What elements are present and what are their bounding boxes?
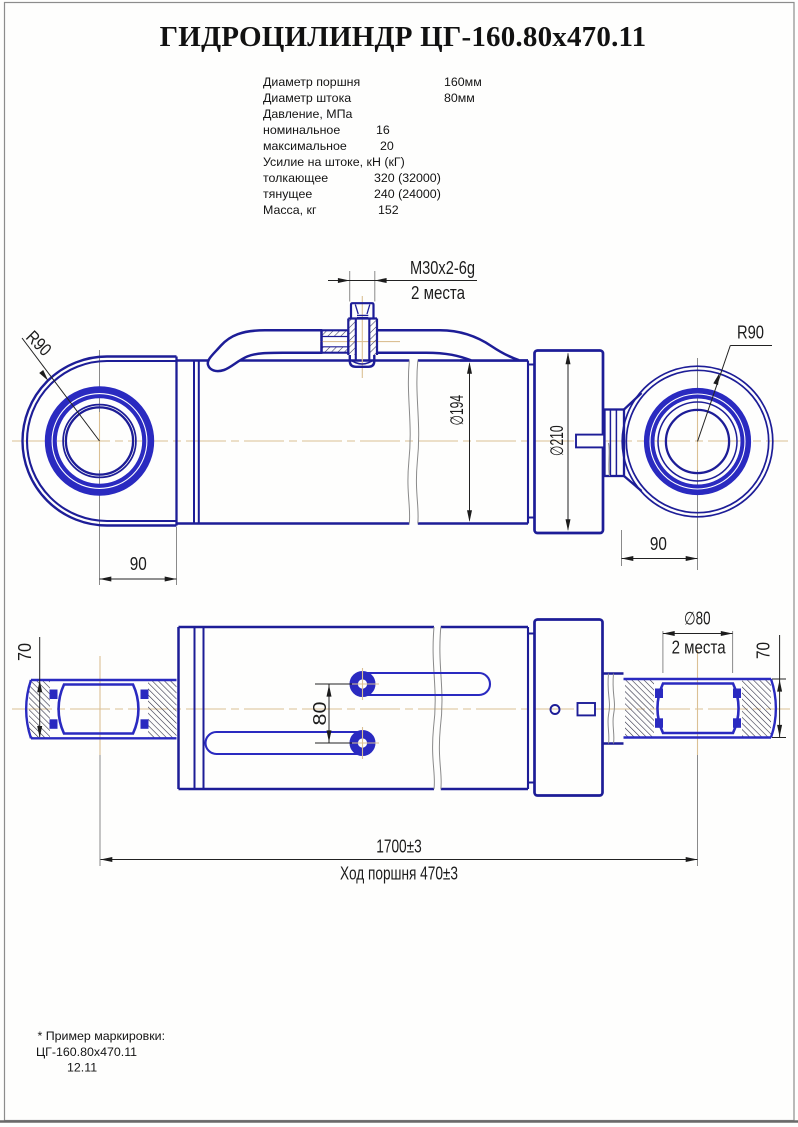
svg-text:152: 152 bbox=[378, 203, 399, 217]
svg-text:20: 20 bbox=[380, 139, 394, 153]
svg-text:2 места: 2 места bbox=[672, 638, 727, 658]
svg-text:Диаметр штока: Диаметр штока bbox=[263, 91, 351, 105]
svg-text:∅80: ∅80 bbox=[684, 609, 711, 629]
svg-text:80мм: 80мм bbox=[444, 91, 475, 105]
svg-text:1700±3: 1700±3 bbox=[376, 837, 422, 857]
svg-text:16: 16 bbox=[376, 123, 390, 137]
svg-text:90: 90 bbox=[130, 554, 147, 574]
svg-text:Ход поршня 470±3: Ход поршня 470±3 bbox=[340, 864, 458, 884]
svg-text:Диаметр поршня: Диаметр поршня bbox=[263, 75, 360, 89]
svg-text:ЦГ-160.80х470.11: ЦГ-160.80х470.11 bbox=[36, 1045, 137, 1059]
svg-text:90: 90 bbox=[650, 534, 667, 554]
svg-text:M30x2-6g: M30x2-6g bbox=[410, 258, 475, 278]
svg-text:80: 80 bbox=[310, 702, 330, 726]
svg-text:12.11: 12.11 bbox=[67, 1061, 97, 1075]
svg-text:R90: R90 bbox=[737, 323, 764, 343]
svg-text:ГИДРОЦИЛИНДР ЦГ-160.80х470.11: ГИДРОЦИЛИНДР ЦГ-160.80х470.11 bbox=[160, 21, 647, 53]
svg-text:толкающее: толкающее bbox=[263, 171, 328, 185]
svg-text:2 места: 2 места bbox=[411, 283, 466, 303]
svg-text:номинальное: номинальное bbox=[263, 123, 340, 137]
svg-text:* Пример маркировки:: * Пример маркировки: bbox=[38, 1029, 166, 1043]
svg-text:тянущее: тянущее bbox=[263, 187, 312, 201]
svg-text:∅210: ∅210 bbox=[547, 426, 567, 457]
svg-text:∅194: ∅194 bbox=[447, 395, 467, 426]
svg-text:Масса, кг: Масса, кг bbox=[263, 203, 317, 217]
svg-text:70: 70 bbox=[754, 642, 774, 659]
svg-text:240 (24000): 240 (24000) bbox=[374, 187, 441, 201]
svg-text:максимальное: максимальное bbox=[263, 139, 347, 153]
svg-text:Усилие на штоке, кН (кГ): Усилие на штоке, кН (кГ) bbox=[263, 155, 405, 169]
svg-text:Давление, МПа: Давление, МПа bbox=[263, 107, 352, 121]
svg-text:320 (32000): 320 (32000) bbox=[374, 171, 441, 185]
svg-text:70: 70 bbox=[15, 643, 35, 661]
svg-text:160мм: 160мм bbox=[444, 75, 482, 89]
